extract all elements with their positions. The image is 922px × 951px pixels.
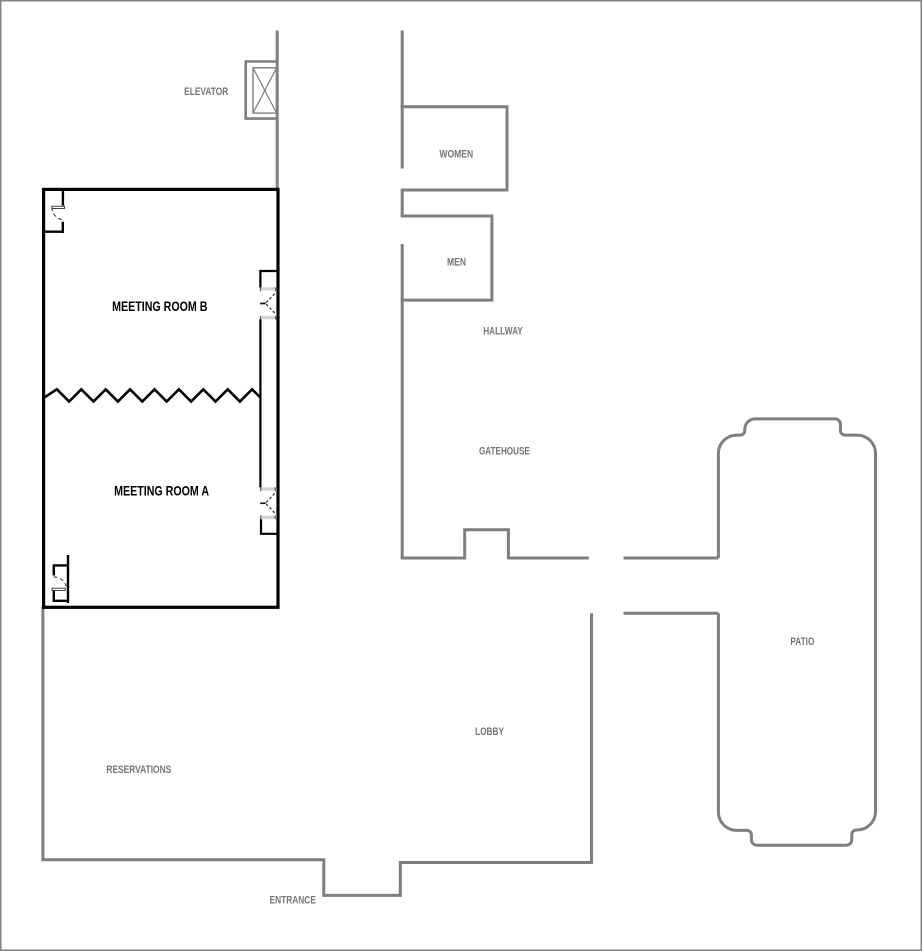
svg-text:ENTRANCE: ENTRANCE bbox=[270, 894, 317, 906]
svg-text:RESERVATIONS: RESERVATIONS bbox=[106, 764, 171, 776]
svg-text:GATEHOUSE: GATEHOUSE bbox=[479, 446, 530, 459]
svg-text:WOMEN: WOMEN bbox=[439, 148, 473, 160]
svg-text:MEN: MEN bbox=[447, 257, 466, 269]
svg-text:HALLWAY: HALLWAY bbox=[483, 325, 523, 337]
svg-text:ELEVATOR: ELEVATOR bbox=[184, 86, 228, 98]
svg-text:MEETING ROOM A: MEETING ROOM A bbox=[114, 483, 209, 499]
svg-text:MEETING ROOM B: MEETING ROOM B bbox=[112, 299, 208, 315]
svg-text:PATIO: PATIO bbox=[790, 636, 814, 648]
svg-text:LOBBY: LOBBY bbox=[475, 726, 504, 738]
